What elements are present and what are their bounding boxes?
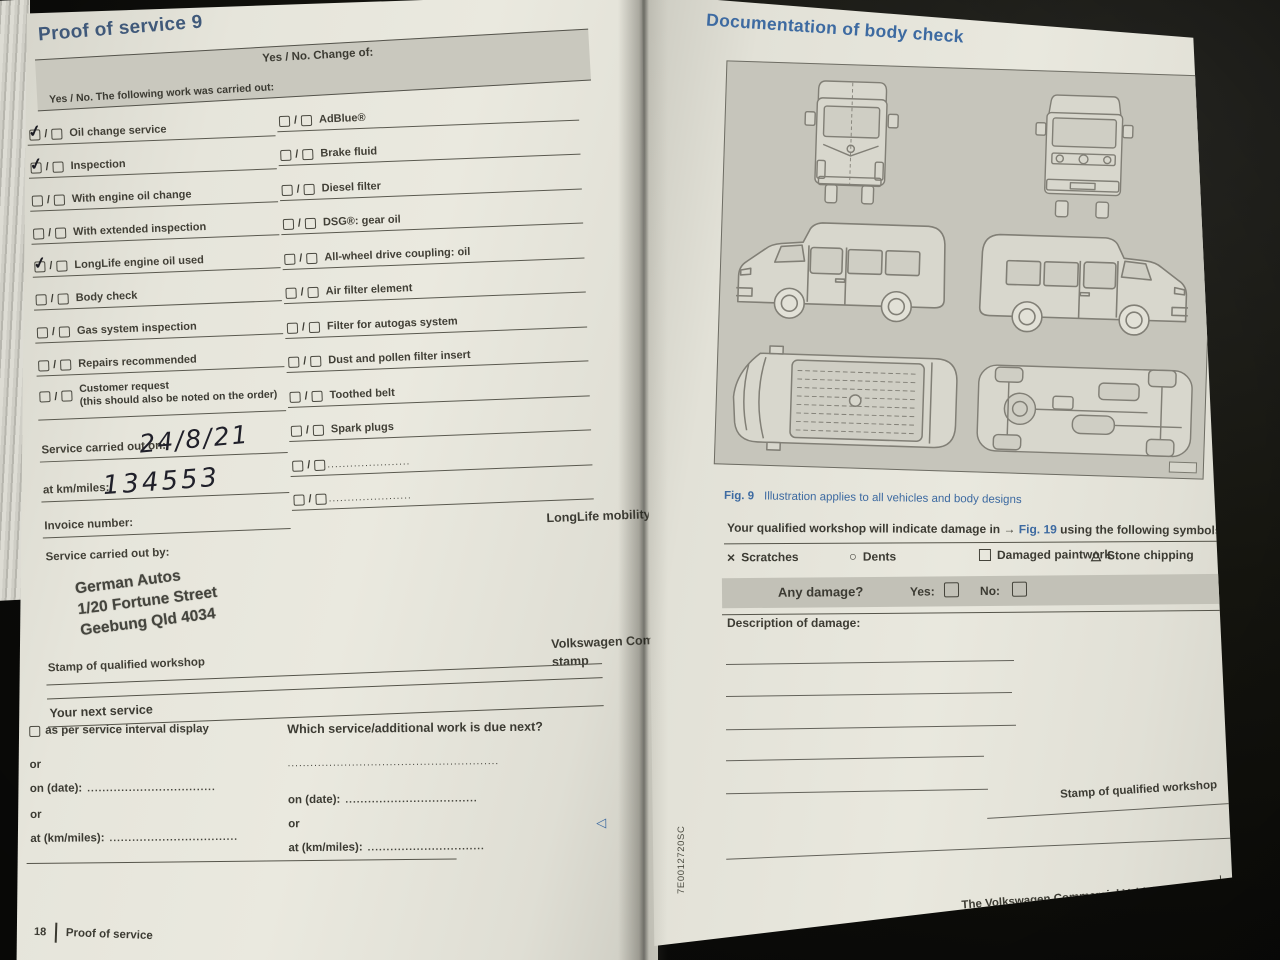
any-damage-bar: Any damage? Yes: No: [722, 574, 1246, 609]
page-number: 19 [1230, 880, 1244, 893]
no-checkbox [302, 149, 313, 160]
no-checkbox [61, 390, 72, 401]
blank-change-entry: ...................... [327, 456, 410, 470]
yes-checkbox [32, 195, 43, 206]
stamp-caption: Stamp of qualified workshop [1060, 779, 1218, 801]
change-item-label: Brake fluid [320, 145, 377, 159]
yes-checkbox [33, 228, 44, 239]
yes-checkbox [289, 391, 300, 402]
yes-checkbox [291, 425, 302, 436]
or-label: or [30, 759, 42, 771]
footer-series-label: The Volkswagen Commercial Vehicles servi… [961, 882, 1212, 911]
change-item-label: Diesel filter [321, 180, 381, 194]
yes-checkbox [285, 288, 296, 299]
no-label: No: [980, 584, 1000, 598]
write-in-line [726, 789, 988, 795]
van-side-view-right-illustration [967, 227, 1199, 354]
or-label: or [30, 809, 42, 821]
fill-in-dots: .................................. [109, 831, 238, 843]
figure-reference-link: Fig. 19 [1019, 522, 1057, 536]
at-km-row: at (km/miles): .........................… [288, 840, 484, 854]
carried-out-by-label: Service carried out by: [45, 547, 169, 564]
work-item-label: Customer request (this should also be no… [79, 376, 278, 408]
no-checkbox [305, 218, 316, 229]
dent-symbol-icon: ○ [849, 549, 857, 564]
change-item-label: Air filter element [325, 282, 412, 297]
yes-checkbox [30, 162, 41, 173]
figure-number: Fig. 9 [724, 490, 754, 502]
no-checkbox [59, 326, 70, 337]
write-in-line [726, 692, 1012, 697]
on-date-row: on (date): .............................… [288, 792, 478, 806]
body-check-figure [714, 60, 1216, 479]
paintwork-symbol-icon [979, 549, 991, 561]
left-page-footer: 18 Proof of service [34, 922, 153, 946]
figure-code-badge [1169, 462, 1197, 474]
interval-checkbox [29, 725, 40, 736]
no-checkbox [303, 183, 314, 194]
change-column: / AdBlue® / Brake fluid / Diesel filter … [276, 86, 594, 511]
no-checkbox [60, 359, 71, 370]
yes-checkbox [279, 115, 290, 126]
van-rear-view-illustration [789, 76, 913, 214]
page-title: Documentation of body check [706, 9, 965, 47]
right-page-footer: The Volkswagen Commercial Vehicles servi… [922, 874, 1245, 920]
work-item-label: Body check [75, 290, 137, 304]
next-service-heading: Your next service [49, 702, 153, 720]
yes-label: Yes: [910, 584, 935, 598]
section-end-marker-icon: ◁ [1238, 786, 1249, 803]
change-item-label: AdBlue® [319, 111, 366, 125]
yes-checkbox [38, 360, 49, 371]
van-underside-view-illustration [969, 353, 1200, 468]
km-label: at km/miles: [43, 482, 110, 497]
stamp-caption: Stamp of qualified workshop [48, 656, 206, 674]
or-label: or [288, 818, 300, 830]
change-item-label: Dust and pollen filter insert [328, 349, 471, 366]
change-item-label: Toothed belt [329, 386, 395, 400]
work-item-label: With engine oil change [72, 189, 192, 206]
spine-part-code: 7E0012720SC [676, 820, 687, 894]
no-checkbox [307, 287, 318, 298]
yes-checkbox [292, 460, 303, 471]
van-top-view-illustration [725, 340, 964, 461]
yes-checkbox [34, 261, 45, 272]
stone-chipping-legend-item: △ Stone chipping [1091, 547, 1194, 564]
yes-checkbox [39, 391, 50, 402]
work-item-label: Gas system inspection [77, 320, 197, 337]
fill-in-dots: .................................. [87, 782, 216, 794]
bottom-line [726, 837, 1242, 860]
scratch-symbol-icon: × [727, 549, 735, 565]
handwritten-service-date: 24/8/21 [138, 420, 251, 459]
write-in-line [726, 756, 984, 762]
dents-legend-item: ○ Dents [849, 548, 896, 563]
damage-indication-note: Your qualified workshop will indicate da… [727, 521, 1226, 538]
next-service-right: Which service/additional work is due nex… [287, 719, 592, 722]
stamp-line [987, 802, 1247, 819]
yes-checkbox [288, 357, 299, 368]
figure-caption: Fig. 9Illustration applies to all vehicl… [724, 490, 1022, 506]
table-header-right: Yes / No. Change of: [262, 47, 374, 65]
change-item-label: Filter for autogas system [327, 315, 458, 332]
van-side-view-left-illustration [727, 214, 959, 341]
left-page: Proof of service 9 Yes / No. The followi… [10, 0, 658, 960]
next-service-section: as per service interval display or on (d… [25, 719, 603, 885]
no-checkbox [56, 260, 67, 271]
write-in-line [726, 660, 1014, 665]
footer-section-label: Proof of service [66, 927, 153, 942]
yes-checkbox [29, 129, 40, 140]
change-item-label: DSG®: gear oil [323, 214, 401, 229]
at-km-row: at (km/miles): .........................… [30, 831, 238, 845]
workshop-stamp: German Autos 1/20 Fortune Street Geebung… [74, 562, 221, 642]
no-checkbox [51, 128, 62, 139]
work-item-label: Inspection [70, 158, 125, 172]
divider [724, 541, 1246, 545]
description-of-damage-label: Description of damage: [727, 616, 860, 630]
section-end-marker-icon: ◁ [596, 815, 606, 831]
fill-in-dots: ........................................… [288, 756, 500, 769]
page-title: Proof of service 9 [37, 12, 203, 47]
no-checkbox [309, 321, 320, 332]
yes-checkbox [944, 582, 959, 597]
no-checkbox [315, 494, 326, 505]
no-checkbox [314, 459, 325, 470]
yes-checkbox [37, 327, 48, 338]
no-checkbox [301, 114, 312, 125]
invoice-label: Invoice number: [44, 517, 133, 532]
van-front-view-illustration [1021, 89, 1147, 225]
footer-divider [55, 923, 57, 943]
write-in-line [726, 725, 1016, 731]
photo-of-service-booklet: Proof of service 9 Yes / No. The followi… [0, 0, 1280, 960]
yes-checkbox [280, 150, 291, 161]
change-item-label: Spark plugs [331, 421, 394, 435]
on-date-row: on (date): .............................… [30, 781, 216, 795]
work-item-label: Oil change service [69, 123, 167, 139]
yes-checkbox [281, 184, 292, 195]
fill-in-dots: ............................... [368, 841, 485, 853]
no-checkbox [54, 194, 65, 205]
no-checkbox [306, 252, 317, 263]
work-column: / Oil change service / Inspection / With… [26, 103, 291, 568]
change-item-label: All-wheel drive coupling: oil [324, 245, 470, 263]
work-item-label: LongLife engine oil used [74, 254, 204, 271]
blank-change-entry: ...................... [328, 490, 411, 504]
right-page: Documentation of body check [642, 0, 1258, 946]
divider [27, 859, 457, 865]
no-checkbox [311, 390, 322, 401]
service-table: / Oil change service / Inspection / With… [24, 86, 603, 729]
due-next-question: Which service/additional work is due nex… [287, 720, 543, 737]
no-checkbox [58, 293, 69, 304]
no-checkbox [55, 227, 66, 238]
divider [722, 610, 1246, 616]
no-checkbox [313, 425, 324, 436]
scratches-legend-item: × Scratches [727, 549, 799, 565]
stone-chip-symbol-icon: △ [1091, 547, 1101, 563]
any-damage-label: Any damage? [778, 584, 863, 600]
yes-checkbox [283, 219, 294, 230]
no-checkbox [1012, 582, 1027, 597]
yes-checkbox [293, 494, 304, 505]
interval-option-row: as per service interval display [29, 723, 209, 737]
yes-checkbox [284, 253, 295, 264]
yes-checkbox [35, 294, 46, 305]
no-checkbox [310, 356, 321, 367]
fill-in-dots: ................................... [345, 793, 477, 805]
damage-symbols-legend: × Scratches ○ Dents Damaged paintwork △ … [727, 547, 1249, 572]
page-number: 18 [34, 926, 47, 938]
footer-divider [1219, 875, 1222, 899]
yes-checkbox [287, 322, 298, 333]
no-checkbox [52, 161, 63, 172]
work-item-label: With extended inspection [73, 221, 207, 238]
work-item-label: Repairs recommended [78, 353, 197, 370]
